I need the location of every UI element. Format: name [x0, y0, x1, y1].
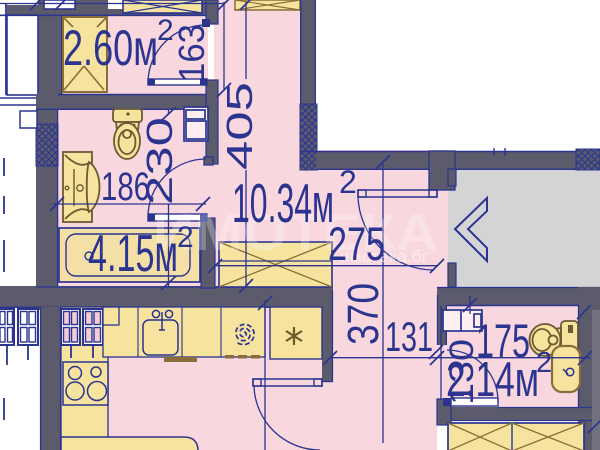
svg-text:275: 275: [328, 217, 385, 270]
svg-text:2: 2: [177, 221, 194, 254]
svg-text:4.15м: 4.15м: [88, 225, 178, 283]
svg-text:10.34м: 10.34м: [232, 172, 334, 234]
svg-text:370: 370: [339, 283, 388, 345]
svg-text:405: 405: [219, 82, 260, 170]
svg-text:2: 2: [339, 164, 357, 200]
svg-text:131: 131: [385, 313, 433, 360]
svg-text:175: 175: [476, 314, 530, 367]
svg-text:2: 2: [536, 347, 552, 379]
svg-text:230: 230: [139, 117, 180, 205]
svg-text:2.60м: 2.60м: [63, 20, 158, 76]
svg-text:163: 163: [171, 24, 212, 82]
